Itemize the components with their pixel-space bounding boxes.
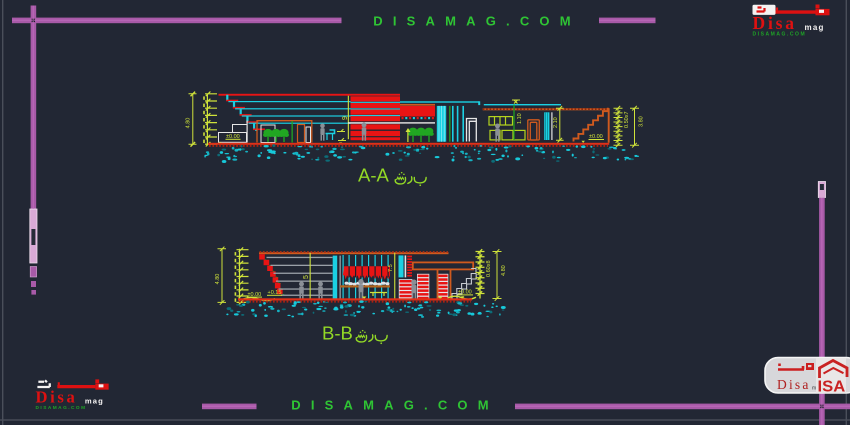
svg-text:DISAMAG.COM: DISAMAG.COM bbox=[36, 405, 87, 411]
svg-text:9: 9 bbox=[342, 116, 349, 120]
svg-text:1.10: 1.10 bbox=[517, 113, 523, 124]
svg-text:4.80: 4.80 bbox=[215, 274, 221, 285]
svg-text:0.50x7: 0.50x7 bbox=[624, 111, 630, 128]
svg-text:7.5: 7.5 bbox=[388, 264, 394, 272]
svg-text:DISAMAG.COM: DISAMAG.COM bbox=[753, 32, 807, 38]
svg-text:Disa: Disa bbox=[753, 13, 797, 33]
svg-text:DISAMAG.COM: DISAMAG.COM bbox=[373, 14, 581, 29]
svg-text:DISAMAG.COM: DISAMAG.COM bbox=[291, 398, 499, 413]
svg-text:B-B: B-B bbox=[322, 323, 353, 344]
svg-text:2.10: 2.10 bbox=[553, 117, 559, 128]
svg-text:mag: mag bbox=[805, 23, 825, 32]
svg-text:3.80: 3.80 bbox=[639, 116, 645, 127]
svg-text:Disa: Disa bbox=[777, 377, 811, 392]
svg-text:ISA: ISA bbox=[818, 378, 846, 396]
svg-text:mag: mag bbox=[85, 397, 104, 406]
svg-text:4.80: 4.80 bbox=[186, 118, 192, 129]
svg-text:5: 5 bbox=[303, 275, 310, 279]
svg-text:Disa: Disa bbox=[36, 388, 78, 407]
svg-text:0.60x8: 0.60x8 bbox=[486, 260, 492, 277]
svg-text:A-A: A-A bbox=[358, 165, 390, 186]
svg-text:4.80: 4.80 bbox=[501, 265, 507, 276]
